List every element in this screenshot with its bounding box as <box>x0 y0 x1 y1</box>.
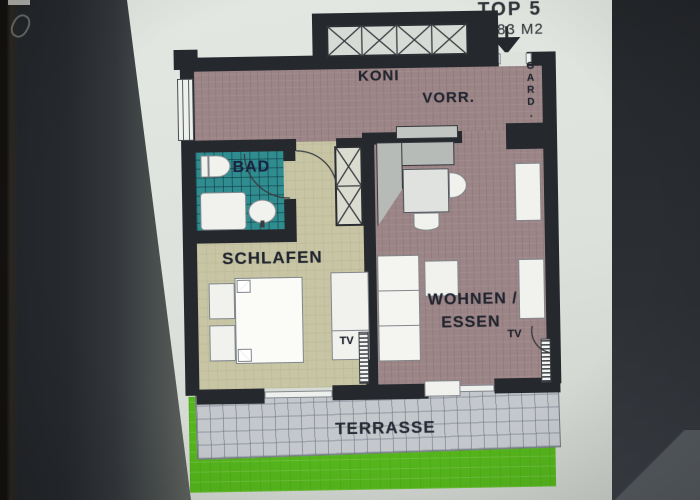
dining-chair-bottom <box>413 212 439 230</box>
hall-label-koni: KONI <box>358 67 400 85</box>
hall-label-vorr: VORR. <box>422 89 475 107</box>
living-label-line2: ESSEN <box>441 313 501 332</box>
living-cabinet-bottom <box>518 259 545 319</box>
wall-bath-right-top <box>283 149 295 161</box>
sofa <box>377 255 421 362</box>
shower <box>200 192 247 231</box>
bedroom-radiator <box>358 332 369 384</box>
bedroom-wardrobe <box>334 146 363 226</box>
sink-tap <box>260 220 264 227</box>
closet-right-cap <box>468 10 499 67</box>
hall-window <box>177 79 194 141</box>
bath-label: BAD <box>232 158 270 177</box>
bed-pillow-bottom <box>238 349 252 362</box>
living-tv <box>541 339 552 383</box>
bedroom-label: SCHLAFEN <box>222 247 323 269</box>
photo-corner-highlight <box>612 430 700 500</box>
closet-left-cap <box>312 25 327 57</box>
entrance-door-opening <box>499 52 527 66</box>
photo-edge-highlight <box>8 0 30 5</box>
photo-background-right <box>612 0 700 500</box>
nightstand-bottom <box>209 325 236 361</box>
hall-sideboard <box>396 125 458 139</box>
bed-pillow-top <box>237 280 251 293</box>
bench-at-terrace-wall <box>424 380 460 397</box>
nightstand-top <box>209 283 236 319</box>
floor-plan-photo: TOP 5 49,83 M2 TERRASSE <box>0 0 700 500</box>
wall-bottom-seg1 <box>196 389 264 405</box>
terrace-door-left <box>264 390 332 398</box>
living-tv-label: TV <box>507 328 521 340</box>
wall-gard-step <box>506 123 546 150</box>
living-cabinet-top <box>515 163 542 221</box>
living-label-line1: WOHNEN / <box>428 290 518 310</box>
wall-corner-step <box>173 50 197 70</box>
wall-bath-bottom <box>183 229 297 244</box>
wall-bottom-seg2 <box>332 384 428 401</box>
wall-hall-bath <box>181 139 296 153</box>
terrace-label: TERRASSE <box>335 418 436 440</box>
gard-label: GARD. <box>525 61 537 121</box>
dining-table <box>403 168 450 213</box>
floor-plan: TOP 5 49,83 M2 TERRASSE <box>0 0 700 500</box>
bedroom-tv-label: TV <box>339 335 353 347</box>
closet-boxes <box>326 23 469 57</box>
